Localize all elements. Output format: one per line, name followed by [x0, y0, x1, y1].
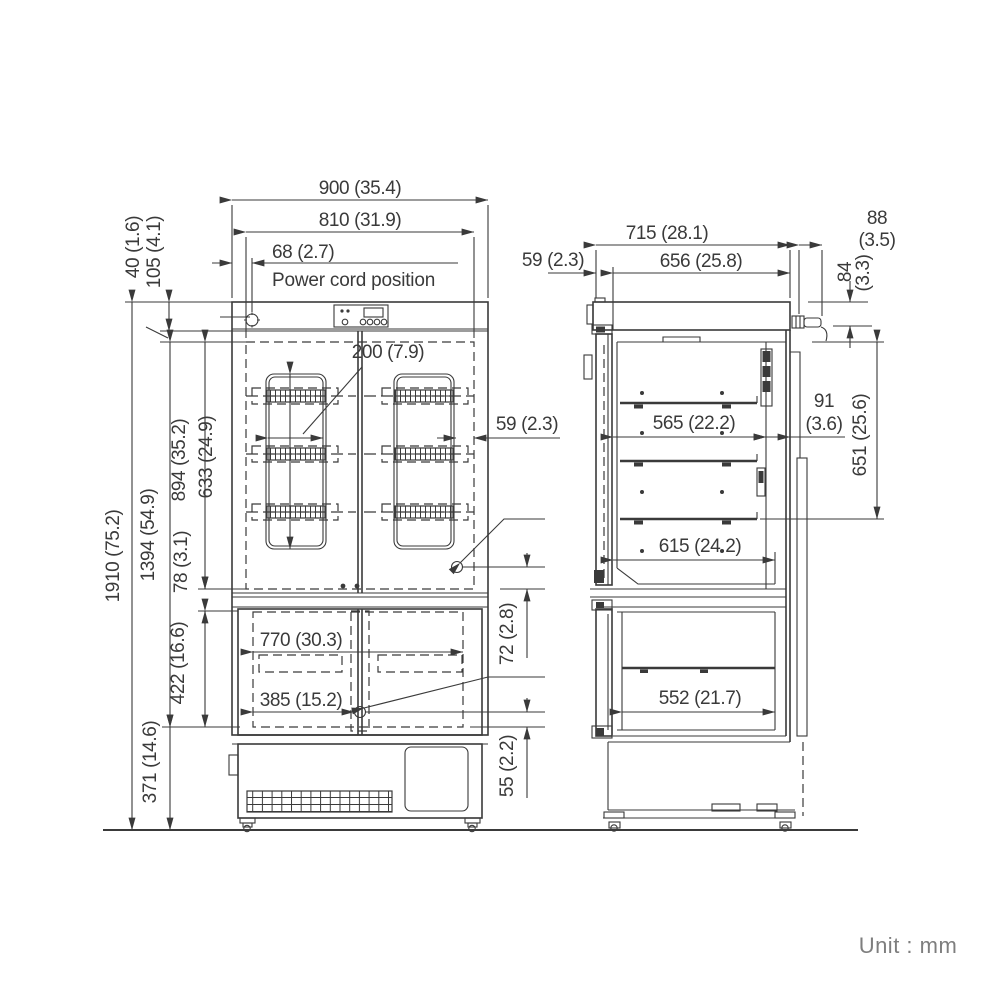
- rack-shelves: [252, 388, 468, 520]
- dim-front-panel-height: 105 (4.1): [144, 216, 165, 289]
- side-lower-door: [592, 600, 612, 738]
- dim-front-height-overall: 1910 (75.2): [103, 510, 124, 603]
- side-upper-door: [584, 325, 612, 585]
- upper-door-lock: [452, 562, 463, 573]
- dim-side-depth-body: 656 (25.8): [660, 251, 743, 272]
- side-view-linework: [584, 298, 827, 831]
- dim-side-cord-drop-in: (3.3): [853, 254, 874, 291]
- front-view-labels: 900 (35.4) 810 (31.9) 68 (2.7) Power cor…: [103, 178, 558, 803]
- dimension-drawing: 900 (35.4) 810 (31.9) 68 (2.7) Power cor…: [0, 0, 1000, 1000]
- lower-door-lock: [355, 707, 366, 718]
- dimension-drawing-page: 900 (35.4) 810 (31.9) 68 (2.7) Power cor…: [0, 0, 1000, 1000]
- dim-side-shelf-depth: 565 (22.2): [653, 413, 736, 434]
- dim-front-width-interior: 810 (31.9): [319, 210, 402, 231]
- dim-side-depth-overall: 715 (28.1): [626, 223, 709, 244]
- dim-side-rear-duct-in: (3.6): [805, 414, 842, 435]
- dim-side-rear-duct-mm: 91: [814, 391, 834, 412]
- dim-side-cord-protrusion-in: (3.5): [858, 230, 895, 251]
- dim-front-divider: 78 (3.1): [171, 531, 192, 593]
- dim-front-height-body: 1394 (54.9): [138, 489, 159, 582]
- dim-side-lower-shelf-depth: 615 (24.2): [659, 536, 742, 557]
- dim-front-freezer-door-width: 385 (15.2): [260, 690, 343, 711]
- dim-side-freezer-depth: 552 (21.7): [659, 688, 742, 709]
- dim-front-upper-interior: 894 (35.2): [169, 419, 190, 502]
- dim-side-cord-protrusion-mm: 88: [867, 208, 887, 229]
- rear-panel: [797, 458, 807, 736]
- power-cord: [792, 316, 827, 341]
- dim-front-width-overall: 900 (35.4): [319, 178, 402, 199]
- dim-side-upper-interior-height: 651 (25.6): [850, 394, 871, 477]
- dim-front-lower-interior: 422 (16.6): [168, 622, 189, 705]
- dim-front-base-height: 371 (14.6): [140, 721, 161, 804]
- side-view-dimensions: [548, 245, 884, 712]
- power-cord-note: Power cord position: [272, 270, 435, 291]
- dim-side-door-thickness: 59 (2.3): [522, 250, 584, 271]
- side-base: [603, 736, 803, 831]
- dim-front-upper-lock: 72 (2.8): [497, 603, 518, 665]
- dim-front-freezer-width: 770 (30.3): [260, 630, 343, 651]
- dim-front-lower-lock: 55 (2.2): [497, 735, 518, 797]
- side-view-labels: 715 (28.1) 656 (25.8) 59 (2.3) 88 (3.5) …: [522, 208, 896, 709]
- dim-front-rack-side-gap: 59 (2.3): [496, 414, 558, 435]
- vent-grille: [247, 791, 392, 812]
- dim-front-rack-width: 200 (7.9): [352, 342, 425, 363]
- compressor-unit: [405, 747, 468, 811]
- dim-front-rack-height: 633 (24.9): [196, 416, 217, 499]
- unit-label: Unit : mm: [859, 933, 958, 958]
- dim-front-top-cap: 40 (1.6): [123, 216, 144, 278]
- dim-front-power-cord-offset: 68 (2.7): [272, 242, 334, 263]
